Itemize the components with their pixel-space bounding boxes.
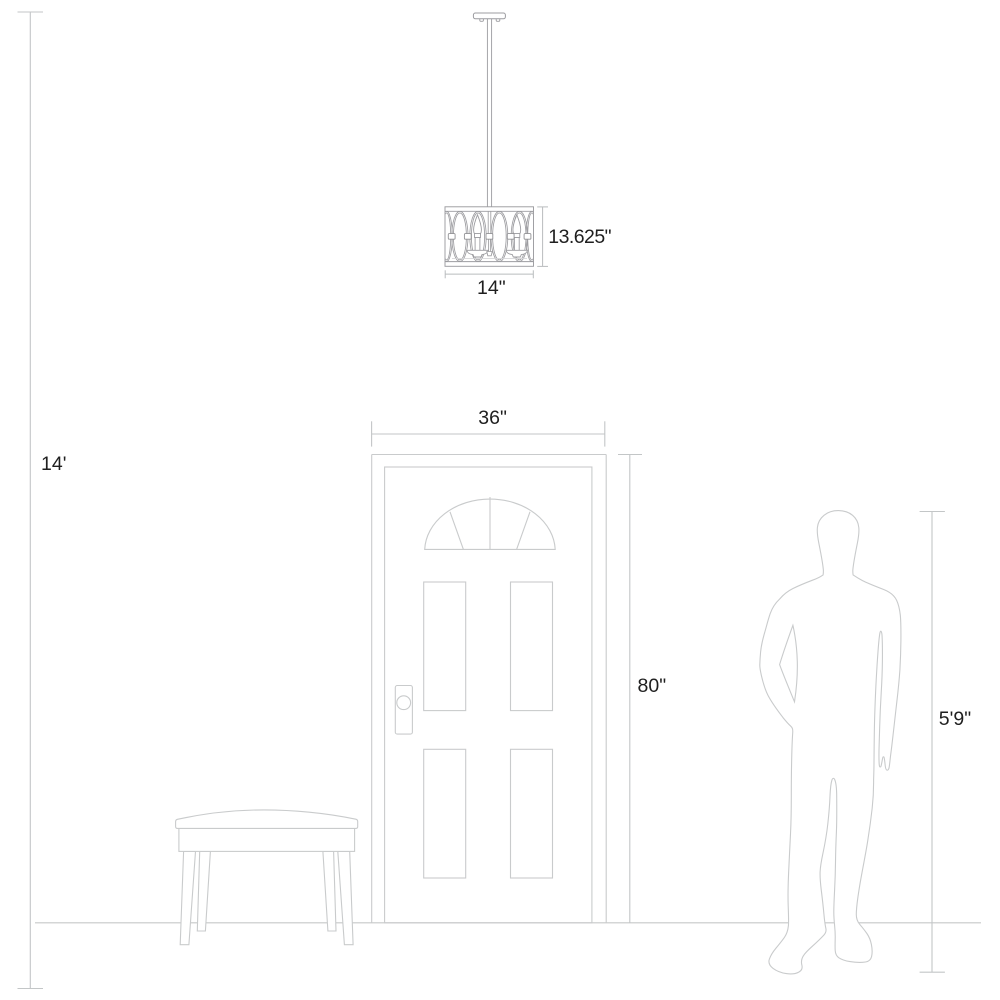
svg-text:14': 14'	[41, 453, 66, 475]
svg-text:5'9": 5'9"	[939, 708, 971, 730]
svg-text:36": 36"	[478, 407, 507, 429]
svg-text:14": 14"	[477, 277, 506, 299]
svg-text:80": 80"	[638, 675, 667, 697]
svg-text:13.625": 13.625"	[548, 226, 611, 248]
